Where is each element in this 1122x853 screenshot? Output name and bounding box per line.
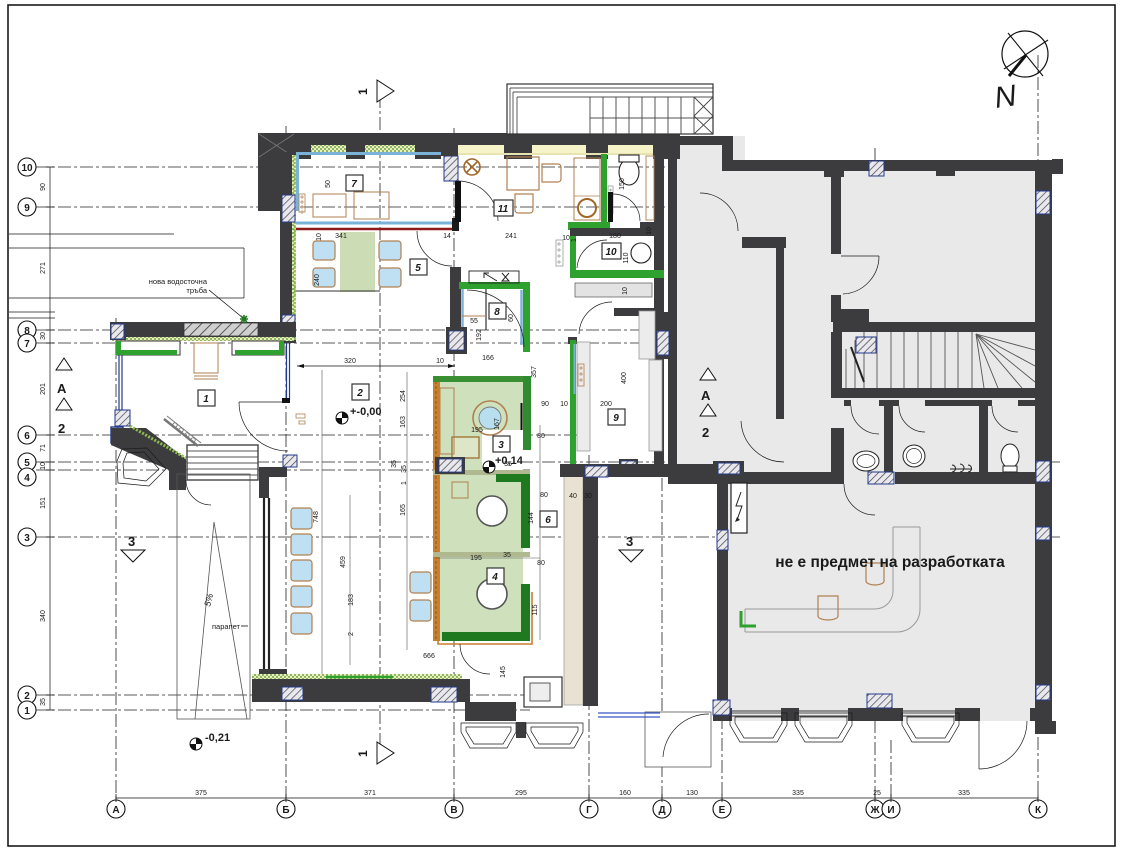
svg-text:6: 6	[545, 515, 551, 526]
svg-text:2: 2	[58, 421, 65, 436]
svg-text:A: A	[57, 381, 67, 396]
svg-text:55: 55	[470, 318, 478, 325]
svg-text:7: 7	[24, 339, 30, 350]
svg-text:10: 10	[560, 401, 568, 408]
svg-text:150: 150	[619, 178, 626, 190]
svg-text:666: 666	[423, 653, 435, 660]
svg-text:195: 195	[471, 427, 483, 434]
svg-text:нова водосточна: нова водосточна	[149, 277, 208, 286]
svg-text:183: 183	[348, 594, 355, 606]
svg-text:5: 5	[24, 458, 30, 469]
svg-text:К: К	[1035, 805, 1042, 816]
svg-text:166: 166	[482, 355, 494, 362]
svg-text:165: 165	[400, 504, 407, 516]
svg-text:3: 3	[626, 534, 633, 549]
svg-text:30: 30	[584, 493, 592, 500]
svg-text:145: 145	[500, 666, 507, 678]
svg-text:35: 35	[503, 552, 511, 559]
svg-text:A: A	[701, 388, 711, 403]
svg-text:200: 200	[600, 401, 612, 408]
svg-text:375: 375	[195, 790, 207, 797]
svg-text:9: 9	[24, 203, 30, 214]
svg-text:25: 25	[873, 790, 881, 797]
svg-text:1: 1	[203, 394, 209, 405]
svg-text:1: 1	[356, 88, 370, 95]
svg-text:1: 1	[571, 238, 578, 242]
svg-text:163: 163	[400, 416, 407, 428]
svg-text:167: 167	[494, 418, 501, 430]
svg-text:271: 271	[40, 262, 47, 274]
svg-text:2: 2	[702, 425, 709, 440]
svg-text:4: 4	[24, 473, 30, 484]
svg-text:И: И	[887, 805, 894, 816]
svg-text:371: 371	[364, 790, 376, 797]
svg-text:9: 9	[613, 413, 619, 424]
svg-text:+-0,00: +-0,00	[350, 406, 382, 418]
svg-text:парапет: парапет	[212, 622, 241, 631]
svg-text:35: 35	[504, 461, 512, 468]
svg-text:Е: Е	[719, 805, 726, 816]
svg-text:-0,21: -0,21	[205, 732, 230, 744]
svg-text:201: 201	[40, 383, 47, 395]
svg-text:195: 195	[470, 555, 482, 562]
svg-text:160: 160	[619, 790, 631, 797]
svg-text:35: 35	[40, 698, 47, 706]
svg-text:400: 400	[621, 372, 628, 384]
svg-text:10: 10	[316, 233, 323, 241]
svg-text:748: 748	[313, 511, 320, 523]
svg-text:3: 3	[498, 440, 504, 451]
svg-text:14: 14	[443, 233, 451, 240]
svg-text:60: 60	[508, 314, 515, 322]
svg-text:80: 80	[537, 433, 545, 440]
svg-text:110: 110	[623, 252, 630, 263]
svg-text:254: 254	[400, 390, 407, 402]
svg-text:5: 5	[415, 263, 421, 274]
svg-text:2: 2	[348, 632, 355, 636]
svg-text:тръба: тръба	[186, 286, 207, 295]
svg-text:341: 341	[335, 233, 347, 240]
svg-text:180: 180	[609, 233, 621, 240]
svg-text:90: 90	[40, 183, 47, 191]
svg-text:295: 295	[515, 790, 527, 797]
svg-text:192: 192	[476, 329, 483, 341]
svg-text:не е предмет на разработката: не е предмет на разработката	[775, 554, 1005, 571]
svg-text:90: 90	[541, 401, 549, 408]
svg-text:335: 335	[792, 790, 804, 797]
svg-text:144: 144	[528, 512, 535, 524]
svg-text:10: 10	[622, 287, 629, 295]
svg-text:357: 357	[531, 366, 538, 378]
svg-text:10: 10	[436, 358, 444, 365]
svg-text:8: 8	[24, 326, 30, 337]
svg-text:3: 3	[24, 533, 30, 544]
svg-text:1: 1	[401, 481, 408, 485]
svg-text:10: 10	[21, 163, 33, 174]
svg-text:335: 335	[958, 790, 970, 797]
svg-text:340: 340	[40, 610, 47, 622]
svg-text:459: 459	[340, 556, 347, 568]
svg-text:7: 7	[351, 179, 357, 190]
svg-text:10: 10	[646, 227, 653, 235]
svg-text:Б: Б	[282, 805, 289, 816]
svg-text:50: 50	[325, 180, 332, 188]
svg-text:11: 11	[498, 204, 509, 215]
svg-text:1: 1	[24, 706, 30, 717]
svg-text:35: 35	[391, 460, 398, 468]
svg-text:115: 115	[532, 604, 539, 615]
svg-text:10: 10	[40, 462, 47, 470]
svg-text:Д: Д	[658, 805, 665, 816]
svg-text:71: 71	[40, 444, 47, 452]
svg-text:4: 4	[491, 572, 498, 583]
svg-text:8: 8	[494, 307, 500, 318]
svg-text:40: 40	[569, 493, 577, 500]
svg-text:80: 80	[540, 492, 548, 499]
svg-text:А: А	[112, 805, 119, 816]
svg-text:240: 240	[314, 274, 321, 286]
svg-text:Ж: Ж	[869, 805, 880, 816]
svg-text:35: 35	[401, 465, 408, 473]
svg-text:В: В	[450, 805, 457, 816]
svg-text:241: 241	[505, 233, 517, 240]
svg-text:Г: Г	[586, 805, 592, 816]
svg-text:3: 3	[128, 534, 135, 549]
svg-text:30: 30	[40, 332, 47, 340]
svg-text:130: 130	[686, 790, 698, 797]
svg-text:2: 2	[356, 388, 363, 399]
svg-text:2: 2	[24, 691, 30, 702]
svg-text:320: 320	[344, 358, 356, 365]
svg-text:10: 10	[605, 247, 617, 258]
svg-text:6: 6	[24, 431, 30, 442]
svg-text:1: 1	[356, 750, 370, 757]
svg-text:151: 151	[40, 497, 47, 509]
svg-text:80: 80	[537, 560, 545, 567]
